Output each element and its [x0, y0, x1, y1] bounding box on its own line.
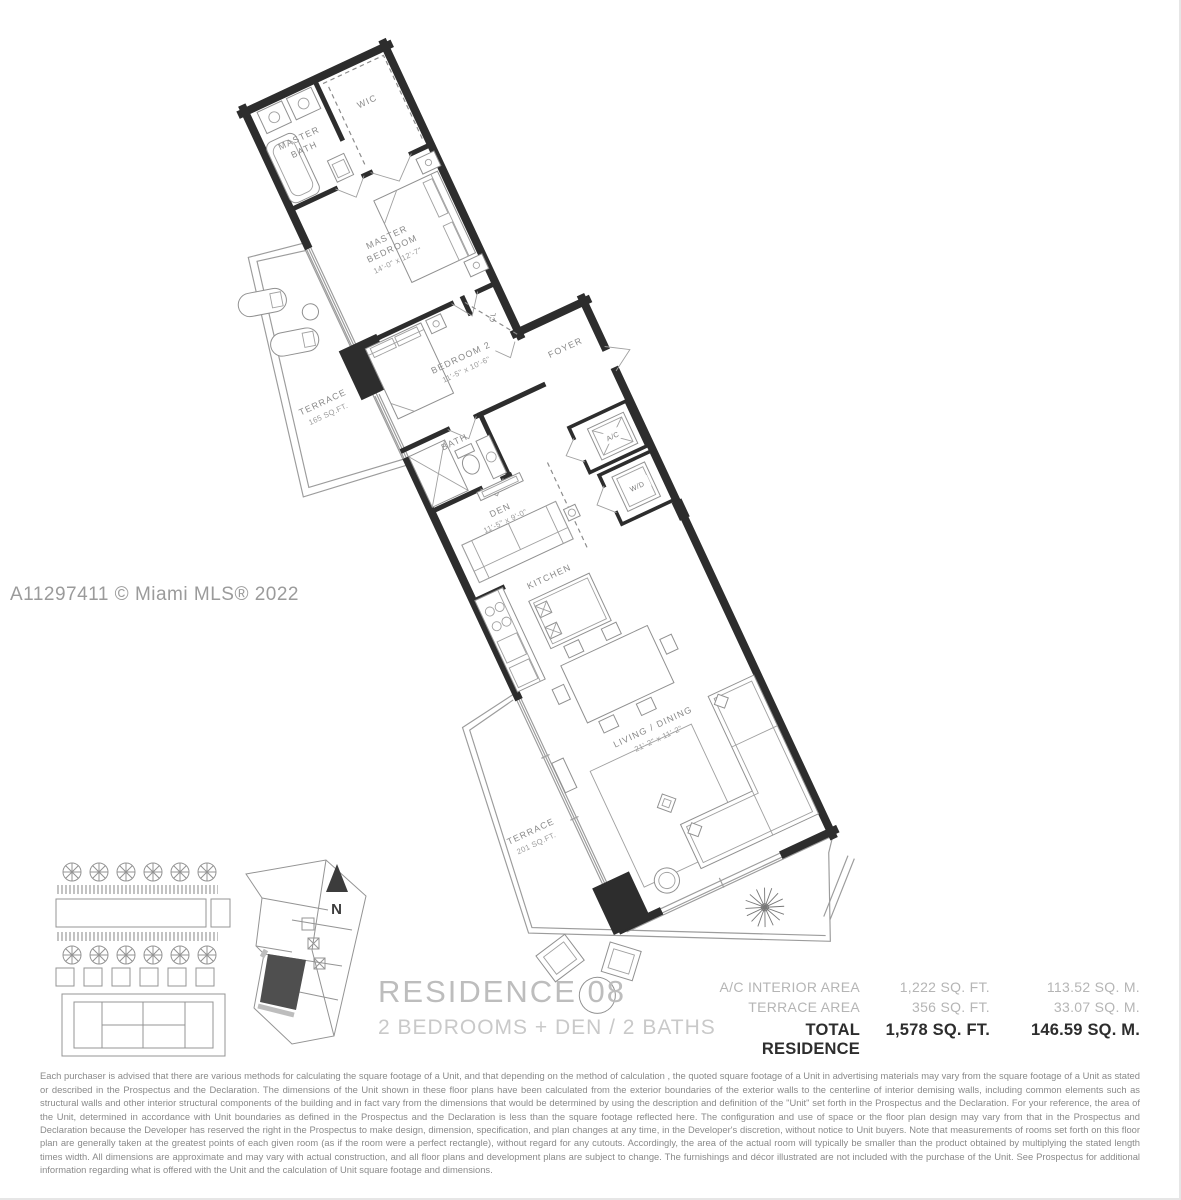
area-row-interior: A/C INTERIOR AREA 1,222 SQ. FT. 113.52 S… [703, 977, 1140, 997]
area-sqm: 33.07 SQ. M. [990, 997, 1140, 1017]
area-sqm: 113.52 SQ. M. [990, 977, 1140, 997]
title-block: RESIDENCE 08 2 BEDROOMS + DEN / 2 BATHS [378, 974, 716, 1040]
residence-title: RESIDENCE 08 [378, 974, 716, 1010]
site-keyplan [56, 860, 366, 1056]
column [672, 498, 690, 521]
area-sqft: 356 SQ. FT. [860, 997, 990, 1017]
floorplan-sheet: A11297411 © Miami MLS® 2022 [0, 0, 1181, 1200]
terrace-upper-furniture [231, 267, 334, 374]
north-arrow: N [326, 864, 348, 918]
area-label: TERRACE AREA [703, 997, 860, 1017]
label-wic: WIC [356, 92, 379, 110]
tree-icon [739, 881, 792, 934]
area-sqm: 146.59 SQ. M. [990, 1021, 1140, 1059]
area-sqft: 1,578 SQ. FT. [860, 1021, 990, 1059]
keyplan-building [246, 860, 366, 1044]
area-label: TOTAL RESIDENCE [703, 1021, 860, 1059]
area-row-terrace: TERRACE AREA 356 SQ. FT. 33.07 SQ. M. [703, 997, 1140, 1017]
residence-subtitle: 2 BEDROOMS + DEN / 2 BATHS [378, 1016, 716, 1040]
label-closet: CL [487, 311, 497, 322]
keyplan-landscape [56, 863, 230, 986]
area-table: A/C INTERIOR AREA 1,222 SQ. FT. 113.52 S… [703, 977, 1140, 1059]
area-row-total: TOTAL RESIDENCE 1,578 SQ. FT. 146.59 SQ.… [703, 1021, 1140, 1059]
legal-disclaimer: Each purchaser is advised that there are… [40, 1069, 1140, 1176]
bedroom2-furniture [365, 314, 473, 419]
area-label: A/C INTERIOR AREA [703, 977, 860, 997]
label-foyer: FOYER [547, 335, 585, 360]
keyplan-tennis-court [62, 994, 225, 1056]
area-sqft: 1,222 SQ. FT. [860, 977, 990, 997]
unit-plan: A/C W/D [144, 4, 892, 1064]
north-label: N [331, 901, 343, 918]
